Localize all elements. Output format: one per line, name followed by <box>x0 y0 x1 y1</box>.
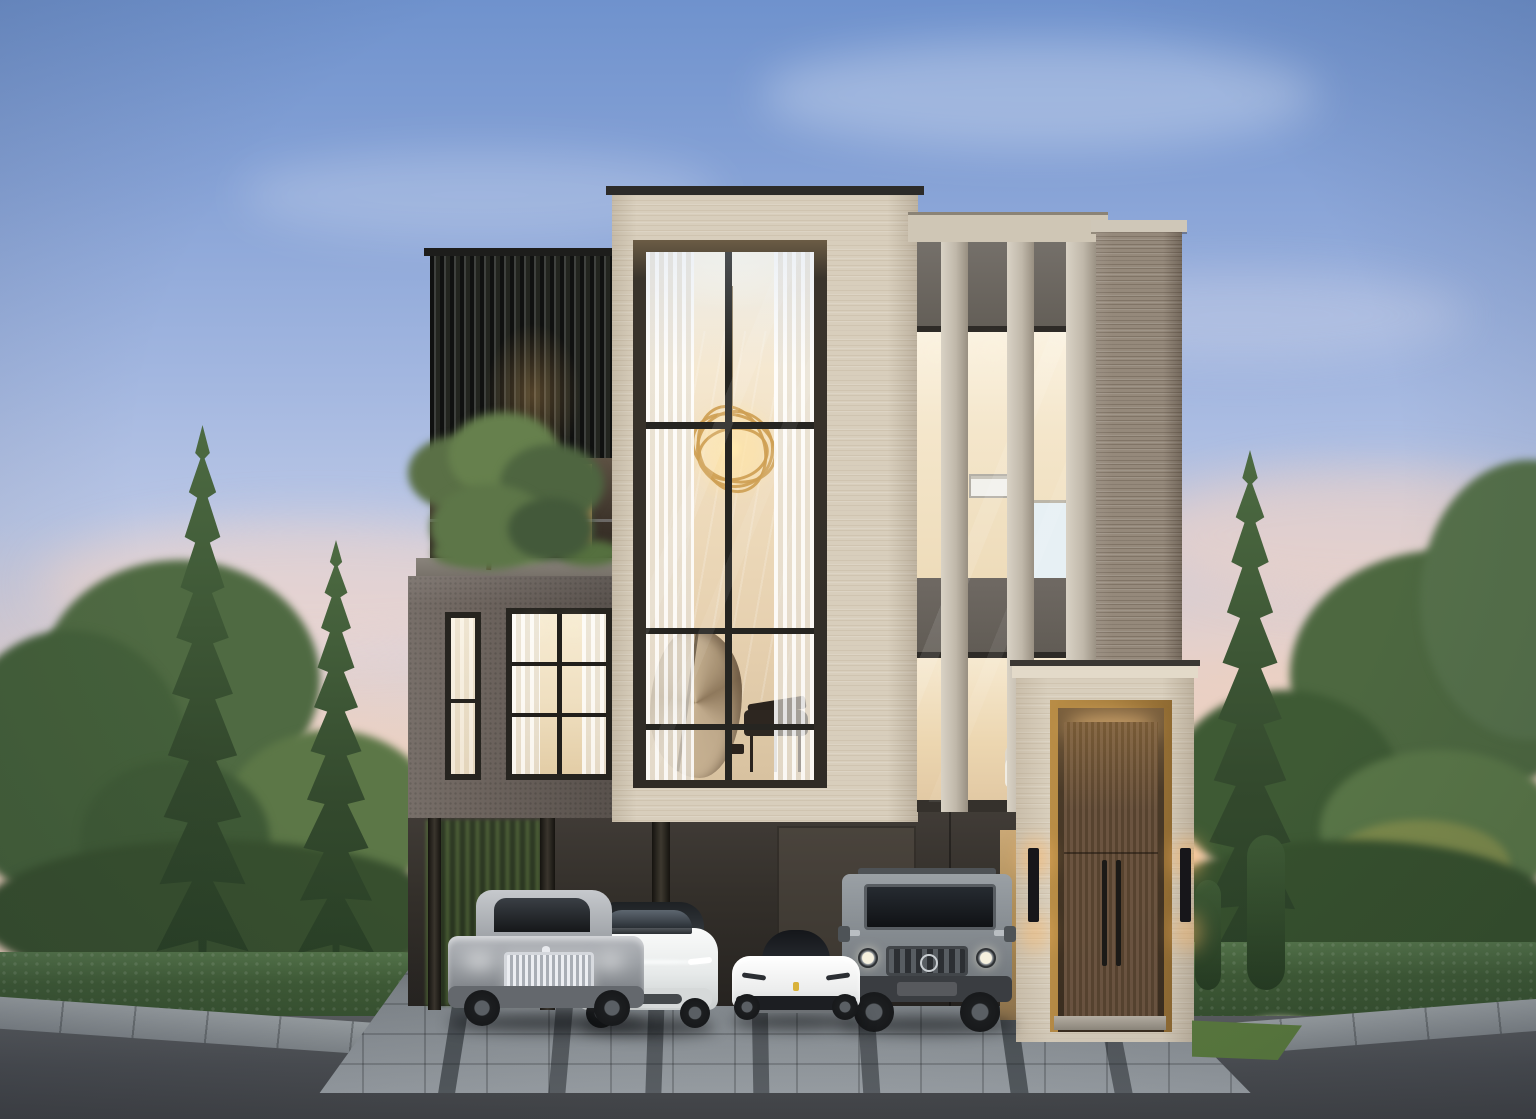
wall-sconce <box>1180 848 1191 922</box>
coupe-wheel <box>594 990 630 1026</box>
atrium-glass <box>646 252 814 780</box>
white-sports-car <box>732 930 860 1030</box>
louver-box-roof-cap <box>424 248 620 256</box>
coupe-headlight <box>464 956 494 966</box>
suv-wheel <box>854 992 894 1032</box>
right-tower-roof-cap <box>1091 220 1187 232</box>
door-seam <box>1064 852 1158 854</box>
window-mullion <box>512 713 606 717</box>
right-section-parapet-band <box>908 212 1108 242</box>
wall-sconce <box>1028 848 1039 922</box>
round-headlight <box>858 948 878 968</box>
terrace-tree-canopy <box>508 498 594 560</box>
window-mullion <box>512 662 606 666</box>
hood-ornament <box>542 946 550 952</box>
carport-column <box>428 815 441 1010</box>
central-tower-roof-cap <box>606 186 924 195</box>
suv-mirror <box>1004 926 1016 942</box>
cloud <box>760 40 1320 150</box>
door-handle <box>1116 860 1121 966</box>
sports-badge <box>793 982 799 991</box>
curtain <box>582 614 606 774</box>
suv-windshield <box>864 884 996 930</box>
coupe-headlight <box>596 956 624 966</box>
ceiling-light <box>567 624 581 632</box>
grey-offroad-suv <box>842 868 1012 1032</box>
sports-wheel <box>734 994 760 1020</box>
coupe-wheel <box>464 990 500 1026</box>
front-door <box>1064 722 1158 1018</box>
coupe-windshield <box>494 898 590 932</box>
narrow-window-glass <box>451 618 475 774</box>
narrow-window-frame <box>445 612 481 780</box>
bedroom-window-frame <box>506 608 612 780</box>
bumper-plate <box>897 982 957 996</box>
entrance-fascia <box>1012 666 1198 678</box>
entrance-step <box>1054 1016 1166 1030</box>
suv-wheel <box>680 998 710 1028</box>
curtain <box>451 618 475 774</box>
suv-wheel <box>960 992 1000 1032</box>
round-headlight <box>976 948 996 968</box>
suv-grille <box>886 946 968 976</box>
door-handle <box>1102 860 1107 966</box>
window-mullion <box>451 699 475 703</box>
sky-reflection <box>646 252 814 368</box>
curtain <box>512 614 540 774</box>
stone-fin <box>941 242 968 812</box>
bedroom-window-glass <box>512 614 606 774</box>
brand-badge <box>920 954 938 972</box>
silver-luxury-coupe <box>448 890 644 1032</box>
window-mullion <box>557 614 562 774</box>
sports-wheel <box>832 994 858 1020</box>
render-scene <box>0 0 1536 1119</box>
juniper-column <box>1247 835 1285 990</box>
